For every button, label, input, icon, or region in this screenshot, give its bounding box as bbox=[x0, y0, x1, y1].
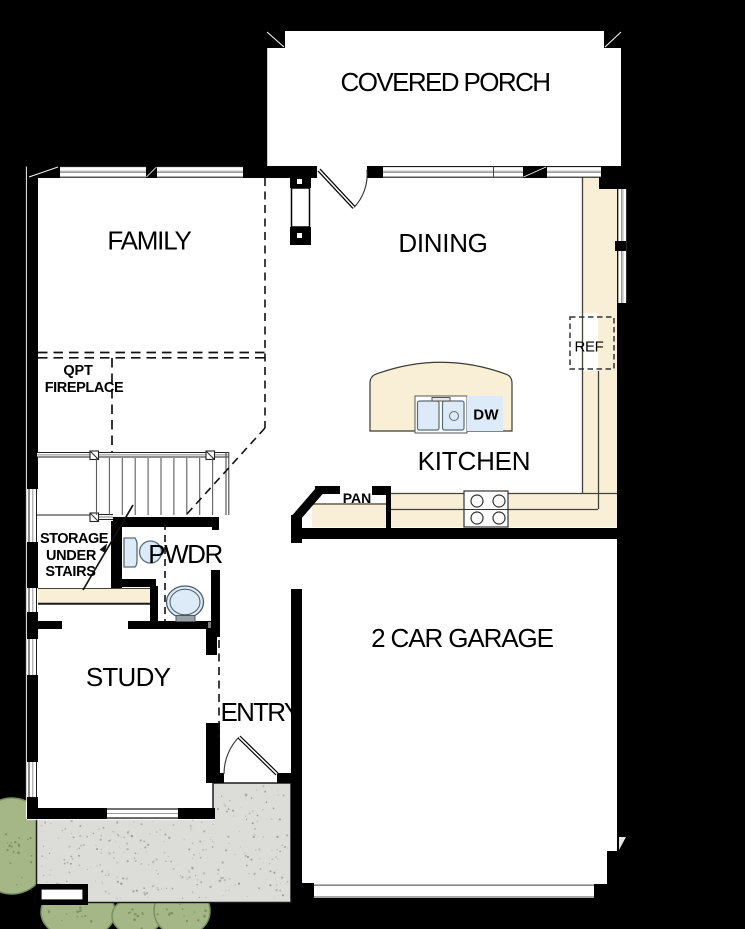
svg-text:UNDER: UNDER bbox=[46, 548, 97, 564]
svg-text:FAMILY: FAMILY bbox=[107, 226, 191, 256]
svg-text:2 CAR GARAGE: 2 CAR GARAGE bbox=[371, 623, 554, 653]
svg-text:PWDR: PWDR bbox=[148, 539, 222, 569]
svg-text:QPT: QPT bbox=[63, 363, 93, 379]
svg-text:STORAGE: STORAGE bbox=[40, 531, 109, 547]
svg-text:DW: DW bbox=[473, 407, 499, 424]
svg-text:FIREPLACE: FIREPLACE bbox=[45, 380, 124, 396]
svg-text:STUDY: STUDY bbox=[86, 662, 171, 692]
svg-text:REF: REF bbox=[574, 339, 603, 356]
svg-text:DINING: DINING bbox=[398, 228, 487, 258]
svg-text:ENTRY: ENTRY bbox=[221, 697, 301, 727]
svg-text:PAN: PAN bbox=[343, 490, 372, 506]
svg-text:KITCHEN: KITCHEN bbox=[418, 446, 531, 476]
svg-text:COVERED PORCH: COVERED PORCH bbox=[341, 67, 550, 97]
svg-text:STAIRS: STAIRS bbox=[45, 564, 96, 580]
